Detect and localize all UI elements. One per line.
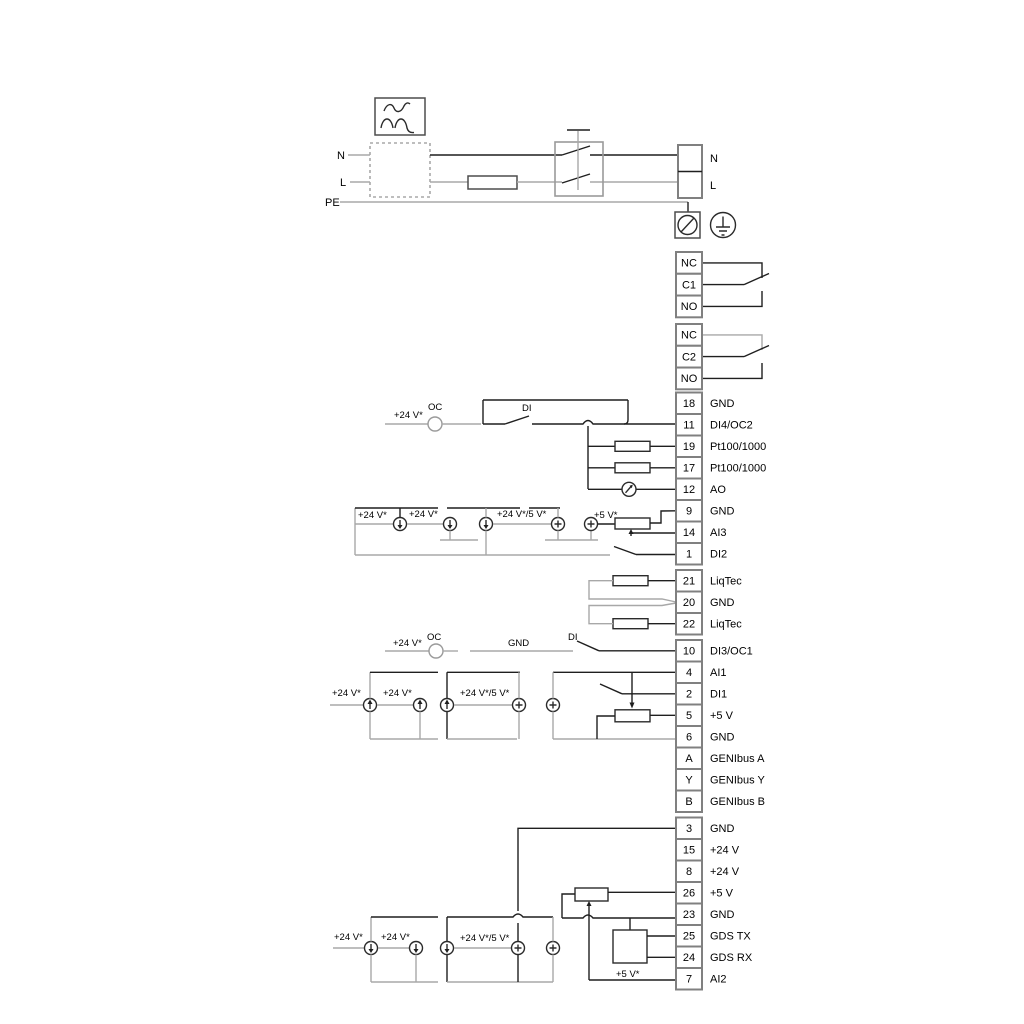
terminal-number: A <box>685 753 693 765</box>
annotation-di3_v24: +24 V* <box>393 638 422 649</box>
terminal-number: Y <box>685 775 693 787</box>
terminal-number: 5 <box>686 710 692 722</box>
terminal-label: LiqTec <box>710 619 742 631</box>
wiper-arrow-down <box>630 703 635 709</box>
gnd23-rail <box>562 915 676 918</box>
ai1-pot-left <box>597 716 615 739</box>
terminal-number: B <box>685 796 692 808</box>
fuse <box>468 176 517 189</box>
arrow-down <box>414 949 419 953</box>
plus-icon <box>588 521 595 528</box>
terminal-block-io3: 3GND15+24 V8+24 V26+5 V23GND25GDS TX24GD… <box>676 818 753 990</box>
open-collector-icon <box>428 417 442 431</box>
arrow-down <box>398 525 403 529</box>
terminal-label: AO <box>710 484 726 496</box>
relay-terminal-label: C2 <box>682 351 696 363</box>
relay1-wiring <box>702 263 769 307</box>
di2-switch-blade <box>614 547 636 555</box>
terminal-number: 12 <box>683 484 695 496</box>
wiper-arrow-up <box>629 529 634 534</box>
terminal-label: DI3/OC1 <box>710 646 753 658</box>
terminal-number: 14 <box>683 527 695 539</box>
arrow-down <box>448 525 453 529</box>
terminal-label: GND <box>710 823 735 835</box>
ai3-potentiometer <box>615 518 650 529</box>
arrow-up <box>368 700 373 705</box>
terminal-number: 22 <box>683 619 695 631</box>
terminal-number: 20 <box>683 597 695 609</box>
meter-needle <box>626 486 632 493</box>
annotation-pow_l_right: L <box>710 180 716 192</box>
pt100-resistor-1 <box>615 441 650 451</box>
terminal-label: Pt100/1000 <box>710 441 766 453</box>
arrow-up <box>445 700 450 705</box>
annotation-ai2_v24_2: +24 V* <box>381 932 410 943</box>
ai3-wiper-to-ai3 <box>631 532 676 536</box>
ai2-potentiometer <box>575 888 608 901</box>
terminal-label: GDS RX <box>710 952 753 964</box>
relay-terminal-label: NC <box>681 330 697 342</box>
terminal-label: GND <box>710 597 735 609</box>
annotation-di4_di: DI <box>522 403 532 414</box>
terminal-block-liqtec: 21LiqTec20GND22LiqTec <box>676 570 742 635</box>
annotation-ai3_v24_2: +24 V* <box>409 509 438 520</box>
liqtec-section <box>589 576 676 629</box>
terminal-number: 11 <box>683 420 694 432</box>
earth-glyph <box>716 217 730 236</box>
relay2-blade <box>744 346 769 357</box>
terminal-label: AI3 <box>710 527 727 539</box>
arrow-down <box>369 949 374 953</box>
relay-terminal-label: NO <box>681 373 698 385</box>
terminal-number: 1 <box>686 549 692 561</box>
terminal-number: 7 <box>686 974 692 986</box>
terminal-block-io1: 18GND11DI4/OC219Pt100/100017Pt100/100012… <box>676 393 766 565</box>
terminal-label: +5 V <box>710 888 734 900</box>
annotation-pow_n_left: N <box>337 150 345 162</box>
relay2-nc-wire <box>702 335 762 350</box>
terminal-label: GENIbus B <box>710 796 765 808</box>
plus-icon <box>516 702 523 709</box>
terminal-number: 18 <box>683 398 695 410</box>
terminal-label: GND <box>710 398 735 410</box>
annotation-ai1_v24_5: +24 V*/5 V* <box>460 688 510 699</box>
plus-icon <box>515 945 522 952</box>
terminal-label: DI2 <box>710 549 727 561</box>
di1-switch-blade <box>600 684 622 694</box>
liqtec-loop-1 <box>589 581 676 602</box>
annotation-ai2_v5: +5 V* <box>616 969 640 980</box>
annotation-ai3_v24_1: +24 V* <box>358 510 387 521</box>
terminal-number: 17 <box>683 463 695 475</box>
annotation-ai1_v24_1: +24 V* <box>332 688 361 699</box>
ai2-pot-left <box>562 894 575 918</box>
ai3-pot-to-gnd <box>650 511 676 523</box>
liqtec-resistor-2 <box>613 619 648 629</box>
terminal-number: 10 <box>683 646 695 658</box>
terminal-label: GENIbus A <box>710 753 765 765</box>
ai2-section <box>333 828 676 982</box>
n-switch-blade <box>562 146 590 155</box>
annotation-pow_n_right: N <box>710 153 718 165</box>
wiring-diagram-page: { "colors": { "wire_dark": "#1f1f1f", "w… <box>0 0 1024 1024</box>
arrow-up <box>418 700 423 705</box>
terminal-blocks-layer: 18GND11DI4/OC219Pt100/100017Pt100/100012… <box>325 150 766 990</box>
terminal-label: DI1 <box>710 689 727 701</box>
wiper-arrow-up <box>587 901 592 906</box>
terminal-label: +24 V <box>710 866 740 878</box>
terminal-label: Pt100/1000 <box>710 463 766 475</box>
terminal-number: 26 <box>683 888 695 900</box>
di3-switch-blade <box>577 641 599 651</box>
wiring-diagram: 18GND11DI4/OC219Pt100/100017Pt100/100012… <box>0 0 1024 1024</box>
di3-section <box>385 641 676 658</box>
annotation-pow_l_left: L <box>340 177 346 189</box>
gds-module-box <box>613 930 647 963</box>
plus-icon <box>550 702 557 709</box>
annotation-ai1_v24_2: +24 V* <box>383 688 412 699</box>
ac-symbol-box <box>375 98 425 135</box>
plus-icon <box>555 521 562 528</box>
annotation-ai2_v24_1: +24 V* <box>334 932 363 943</box>
annotation-ai2_v24_5: +24 V*/5 V* <box>460 933 510 944</box>
terminal-label: DI4/OC2 <box>710 420 753 432</box>
terminal-number: 3 <box>686 823 692 835</box>
terminal-label: GENIbus Y <box>710 775 765 787</box>
annotation-ai3_v24_5: +24 V*/5 V* <box>497 509 547 520</box>
di4-switch-blade <box>505 416 529 424</box>
annotation-di3_gnd: GND <box>508 638 529 649</box>
annotation-di4_v24: +24 V* <box>394 410 423 421</box>
di4-section <box>385 400 676 496</box>
terminal-number: 23 <box>683 909 695 921</box>
di4-bracket <box>483 400 628 424</box>
arrow-down <box>445 949 450 953</box>
terminal-label: +24 V <box>710 845 740 857</box>
annotation-di3_oc: OC <box>427 632 441 643</box>
terminal-number: 25 <box>683 931 695 943</box>
terminal-number: 21 <box>683 576 695 588</box>
annotation-pow_pe: PE <box>325 197 340 209</box>
liqtec-loop-2 <box>589 603 676 624</box>
annotation-di3_di: DI <box>568 632 578 643</box>
l-switch-blade <box>562 174 590 183</box>
pt100-resistor-2 <box>615 463 650 473</box>
terminal-number: 19 <box>683 441 695 453</box>
terminal-label: +5 V <box>710 710 734 722</box>
terminal-label: GND <box>710 732 735 744</box>
di4-wire-to-terminal <box>532 421 676 425</box>
ai2-top-cap2 <box>447 914 553 917</box>
terminal-number: 6 <box>686 732 692 744</box>
ai1-potentiometer <box>615 710 650 722</box>
terminal-number: 8 <box>686 866 692 878</box>
terminal-label: AI2 <box>710 974 727 986</box>
terminal-label: LiqTec <box>710 576 742 588</box>
power-section <box>340 98 736 238</box>
plus-icon <box>550 945 557 952</box>
relay-block-1: NCC1NO <box>676 252 702 317</box>
relay-terminal-label: C1 <box>682 279 696 291</box>
terminal-block-io2: 10DI3/OC14AI12DI15+5 V6GNDAGENIbus AYGEN… <box>676 640 765 812</box>
terminal-label: GDS TX <box>710 931 751 943</box>
relay1-nc-wire <box>702 263 762 278</box>
relay-terminal-label: NC <box>681 258 697 270</box>
terminal-number: 9 <box>686 506 692 518</box>
terminal-number: 4 <box>686 667 692 679</box>
gnd3-wire <box>518 828 676 911</box>
ai3-c2-bottom-stub <box>440 531 478 541</box>
relay1-blade <box>744 274 769 285</box>
ai1-section <box>330 672 676 739</box>
relay2-no-wire <box>702 363 762 378</box>
liqtec-resistor-1 <box>613 576 648 586</box>
terminal-label: GND <box>710 506 735 518</box>
relay1-no-wire <box>702 291 762 306</box>
ai1-bottom-rail <box>370 738 676 740</box>
annotation-ai3_v5: +5 V* <box>594 510 618 521</box>
relay-terminal-label: NO <box>681 301 698 313</box>
terminal-number: 2 <box>686 689 692 701</box>
relay-block-2: NCC2NO <box>676 324 702 389</box>
arrow-down <box>484 525 489 529</box>
open-collector-icon <box>429 644 443 658</box>
supply-dashed-box <box>370 143 430 197</box>
relay2-wiring <box>702 335 769 379</box>
annotation-di4_oc: OC <box>428 402 442 413</box>
terminal-number: 24 <box>683 952 695 964</box>
terminal-label: GND <box>710 909 735 921</box>
terminal-label: AI1 <box>710 667 727 679</box>
terminal-number: 15 <box>683 845 695 857</box>
